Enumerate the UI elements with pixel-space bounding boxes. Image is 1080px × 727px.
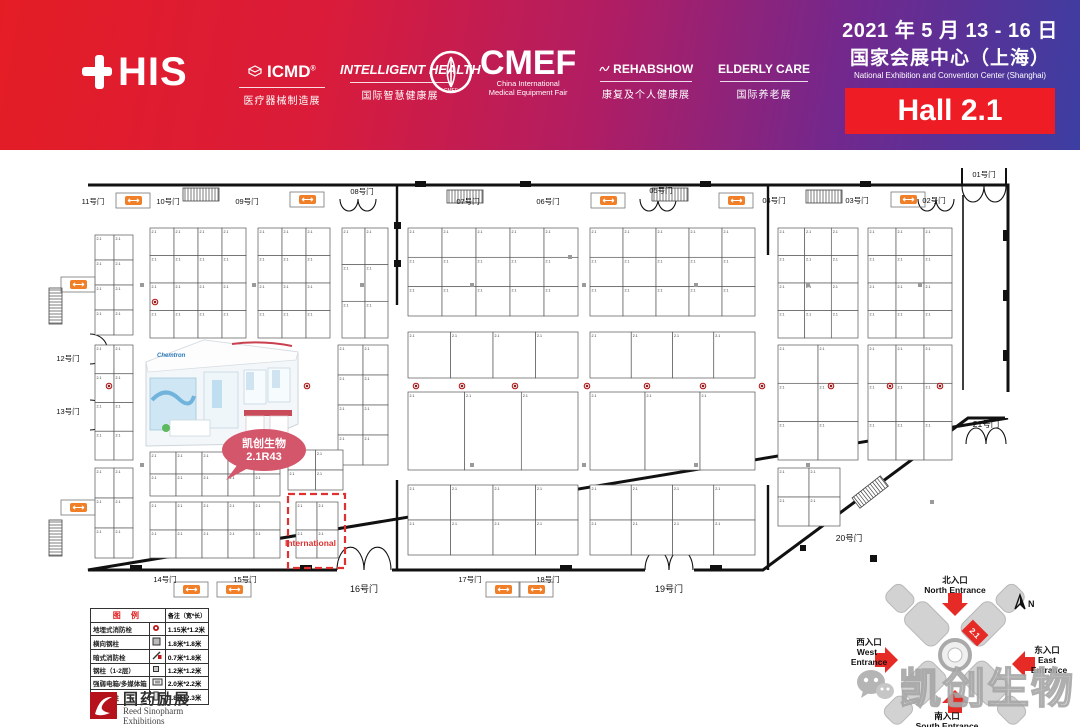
svg-text:2.1: 2.1 [308, 285, 313, 289]
svg-text:2.1: 2.1 [298, 504, 303, 508]
svg-text:2.1: 2.1 [833, 313, 838, 317]
svg-text:2.1: 2.1 [97, 262, 102, 266]
booth-cell: 2.1 [896, 345, 924, 383]
legend-row: 钢柱（1-2层） 1.2米*1.2米 [91, 664, 209, 677]
escalator-icon [486, 582, 520, 597]
booth-cell: 2.1 [631, 520, 672, 555]
booth-cell: 2.1 [818, 345, 858, 383]
booth-cell: 2.1 [408, 485, 451, 520]
booth-cell: 2.1 [590, 332, 631, 378]
svg-text:2.1: 2.1 [444, 289, 449, 293]
booth-cell: 2.1 [95, 260, 114, 285]
booth-cell: 2.1 [778, 468, 809, 497]
escalator-icon [591, 193, 625, 208]
svg-text:2.1: 2.1 [116, 347, 121, 351]
highlight-booth-number: 2.1R43 [246, 451, 281, 463]
booth-cell: 2.1 [198, 256, 222, 284]
elderly-name: ELDERLY CARE [712, 62, 816, 76]
escalator-icon [217, 582, 251, 597]
svg-text:2.1: 2.1 [410, 259, 415, 263]
svg-text:2.1: 2.1 [230, 504, 235, 508]
svg-text:2.1: 2.1 [495, 334, 500, 338]
booth-cell: 2.1 [689, 257, 722, 286]
svg-text:2.1: 2.1 [691, 289, 696, 293]
booth-cell: 2.1 [656, 287, 689, 316]
gate-label: 05号门 [649, 186, 672, 195]
rehab-tagline: 康复及个人健康展 [592, 86, 700, 101]
booth-cell: 2.1 [673, 485, 714, 520]
booth-cell: 2.1 [317, 502, 338, 530]
booth-cell: 2.1 [714, 332, 755, 378]
escalator-icon [116, 193, 150, 208]
svg-text:2.1: 2.1 [260, 313, 265, 317]
column-icon [930, 500, 934, 504]
svg-text:2.1: 2.1 [152, 454, 157, 458]
svg-text:2.1: 2.1 [780, 347, 785, 351]
organizer-name-cn: 国药励展 [123, 692, 191, 707]
svg-text:2.1: 2.1 [898, 258, 903, 262]
booth-cell: 2.1 [831, 283, 858, 311]
gate-label: 20号门 [836, 533, 862, 543]
svg-text:2.1: 2.1 [344, 303, 349, 307]
booth-cell: 2.1 [222, 283, 246, 311]
rehab-name: REHABSHOW [613, 62, 693, 76]
booth-cell: 2.1 [673, 520, 714, 555]
svg-text:2.1: 2.1 [592, 334, 597, 338]
svg-text:2.1: 2.1 [116, 405, 121, 409]
booth-cell: 2.1 [306, 228, 330, 256]
east-entrance-label: 东入口 [1034, 645, 1060, 655]
booth-cell: 2.1 [623, 287, 656, 316]
svg-text:2.1: 2.1 [658, 259, 663, 263]
svg-text:2.1: 2.1 [367, 230, 372, 234]
svg-text:2.1: 2.1 [466, 394, 471, 398]
svg-text:2.1: 2.1 [367, 303, 372, 307]
booth-cell: 2.1 [363, 435, 388, 465]
booth-cell: 2.1 [176, 452, 202, 474]
booth-cell: 2.1 [95, 235, 114, 260]
booth-cell: 2.1 [590, 520, 631, 555]
icmd-logo: ICMD® 医疗器械制造展 [232, 62, 332, 107]
south-entrance-label-en: South Entrance [916, 721, 979, 727]
column-icon [470, 283, 474, 287]
booth-cell: 2.1 [222, 228, 246, 256]
icmd-cube-icon [248, 65, 262, 77]
svg-text:2.1: 2.1 [152, 285, 157, 289]
svg-text:2.1: 2.1 [340, 377, 345, 381]
booth-cell: 2.1 [176, 502, 202, 530]
svg-text:2.1: 2.1 [410, 334, 415, 338]
svg-text:2.1: 2.1 [365, 407, 370, 411]
svg-text:2.1: 2.1 [820, 385, 825, 389]
svg-text:2.1: 2.1 [674, 522, 679, 526]
svg-text:2.1: 2.1 [674, 334, 679, 338]
svg-text:2.1: 2.1 [97, 530, 102, 534]
svg-text:2.1: 2.1 [97, 470, 102, 474]
booth-cell: 2.1 [778, 497, 809, 526]
booth-cell: 2.1 [831, 311, 858, 339]
column-square-icon [149, 636, 165, 650]
booth-cell: 2.1 [536, 485, 579, 520]
svg-text:2.1: 2.1 [633, 522, 638, 526]
booth-cell: 2.1 [222, 311, 246, 339]
booth-cell: 2.1 [114, 431, 133, 460]
svg-text:2.1: 2.1 [658, 230, 663, 234]
booth-cell: 2.1 [896, 311, 924, 339]
stairs-icon [852, 476, 888, 508]
booth-cell: 2.1 [510, 287, 544, 316]
gate-label: 02号门 [922, 196, 945, 205]
column-icon [582, 283, 586, 287]
svg-text:2.1: 2.1 [926, 285, 931, 289]
svg-text:2.1: 2.1 [898, 285, 903, 289]
svg-text:2.1: 2.1 [495, 487, 500, 491]
svg-text:2.1: 2.1 [116, 433, 121, 437]
booth-cell: 2.1 [544, 287, 578, 316]
booth-cell: 2.1 [114, 345, 133, 374]
booth-cell: 2.1 [868, 283, 896, 311]
booth-cell: 2.1 [544, 228, 578, 257]
booth-cell: 2.1 [493, 332, 536, 378]
svg-text:2.1: 2.1 [116, 287, 121, 291]
booth-cell: 2.1 [114, 498, 133, 528]
divider [239, 87, 325, 88]
svg-text:2.1: 2.1 [230, 532, 235, 536]
svg-text:2.1: 2.1 [780, 230, 785, 234]
booth-cell: 2.1 [722, 287, 755, 316]
booth-cell: 2.1 [590, 392, 645, 470]
gate-label: 21号门 [973, 419, 999, 429]
legend-row: 横向钢柱 1.8米*1.8米 [91, 636, 209, 650]
divider [600, 81, 692, 82]
svg-text:2.1: 2.1 [200, 285, 205, 289]
hall-title: Hall 2.1 [845, 88, 1055, 134]
svg-text:2.1: 2.1 [546, 289, 551, 293]
booth-cell: 2.1 [338, 405, 363, 435]
escalator-icon [290, 192, 324, 207]
svg-text:2.1: 2.1 [870, 385, 875, 389]
reed-sinopharm-mark-icon [90, 692, 117, 719]
booth-cell: 2.1 [493, 485, 536, 520]
escalator-icon [519, 582, 553, 597]
svg-text:2.1: 2.1 [367, 267, 372, 271]
svg-text:2.1: 2.1 [116, 237, 121, 241]
svg-text:2.1: 2.1 [898, 385, 903, 389]
booth-cell: 2.1 [288, 470, 316, 490]
booth-cell: 2.1 [282, 311, 306, 339]
booth-cell: 2.1 [868, 422, 896, 460]
booth-cell: 2.1 [778, 256, 805, 284]
booth-cell: 2.1 [254, 530, 280, 558]
svg-text:2.1: 2.1 [308, 230, 313, 234]
booth-cell: 2.1 [174, 228, 198, 256]
svg-text:2.1: 2.1 [176, 258, 181, 262]
booth-cell: 2.1 [778, 311, 805, 339]
booth-cell: 2.1 [510, 257, 544, 286]
cmef-emblem-icon: CMEF [428, 49, 474, 95]
booth-cell: 2.1 [365, 301, 388, 338]
svg-text:2.1: 2.1 [715, 522, 720, 526]
svg-text:2.1: 2.1 [340, 347, 345, 351]
booth-cell: 2.1 [202, 502, 228, 530]
booth-cell: 2.1 [451, 520, 494, 555]
legend-row: 暗式消防栓 0.7米*1.8米 [91, 650, 209, 664]
booth-cell: 2.1 [174, 256, 198, 284]
booth-cell: 2.1 [114, 374, 133, 403]
svg-text:2.1: 2.1 [870, 285, 875, 289]
svg-text:2.1: 2.1 [178, 454, 183, 458]
booth-cell: 2.1 [818, 422, 858, 460]
svg-text:2.1: 2.1 [833, 230, 838, 234]
svg-text:2.1: 2.1 [833, 285, 838, 289]
svg-text:2.1: 2.1 [344, 230, 349, 234]
svg-text:2.1: 2.1 [478, 230, 483, 234]
booth-cell: 2.1 [95, 431, 114, 460]
booth-cell: 2.1 [623, 257, 656, 286]
svg-text:2.1: 2.1 [444, 230, 449, 234]
booth-cell: 2.1 [656, 257, 689, 286]
svg-text:2.1: 2.1 [200, 258, 205, 262]
svg-text:2.1: 2.1 [284, 230, 289, 234]
svg-text:2.1: 2.1 [152, 313, 157, 317]
booth-cell: 2.1 [174, 311, 198, 339]
booth-cell: 2.1 [258, 311, 282, 339]
booth-cell: 2.1 [254, 474, 280, 496]
booth-cell: 2.1 [198, 228, 222, 256]
svg-text:2.1: 2.1 [116, 312, 121, 316]
svg-text:2.1: 2.1 [97, 237, 102, 241]
booth-cell: 2.1 [150, 502, 176, 530]
booth-cell: 2.1 [714, 485, 755, 520]
booth-cell: 2.1 [645, 392, 700, 470]
svg-text:2.1: 2.1 [780, 313, 785, 317]
booth-cell: 2.1 [510, 228, 544, 257]
svg-text:2.1: 2.1 [452, 487, 457, 491]
booth-cell: 2.1 [114, 260, 133, 285]
svg-text:2.1: 2.1 [344, 267, 349, 271]
booth-cell: 2.1 [342, 228, 365, 265]
booth-cell: 2.1 [831, 228, 858, 256]
booth-cell: 2.1 [896, 228, 924, 256]
svg-text:2.1: 2.1 [260, 285, 265, 289]
svg-text:2.1: 2.1 [512, 259, 517, 263]
svg-text:2.1: 2.1 [523, 394, 528, 398]
svg-text:2.1: 2.1 [592, 289, 597, 293]
booth-cell: 2.1 [868, 383, 896, 421]
column-icon [252, 283, 256, 287]
svg-text:2.1: 2.1 [780, 385, 785, 389]
column-icon [140, 283, 144, 287]
booth-cell: 2.1 [476, 257, 510, 286]
svg-text:2.1: 2.1 [178, 504, 183, 508]
svg-text:2.1: 2.1 [284, 313, 289, 317]
booth-cell: 2.1 [150, 228, 174, 256]
svg-text:2.1: 2.1 [224, 230, 229, 234]
gate-label: 08号门 [350, 187, 373, 196]
svg-text:2.1: 2.1 [592, 522, 597, 526]
booth-cell: 2.1 [442, 287, 476, 316]
svg-text:2.1: 2.1 [97, 376, 102, 380]
gate-label: 06号门 [536, 197, 559, 206]
svg-text:2.1: 2.1 [691, 259, 696, 263]
svg-text:2.1: 2.1 [811, 499, 816, 503]
svg-text:2.1: 2.1 [633, 487, 638, 491]
gate-label: 11号门 [82, 197, 105, 206]
svg-text:2.1: 2.1 [898, 313, 903, 317]
svg-text:2.1: 2.1 [674, 487, 679, 491]
booth-cell: 2.1 [465, 392, 522, 470]
this-cross-icon [82, 55, 116, 89]
column-icon [470, 463, 474, 467]
north-entrance-label-en: North Entrance [924, 585, 986, 595]
svg-text:2.1: 2.1 [926, 258, 931, 262]
svg-text:2.1: 2.1 [365, 377, 370, 381]
svg-text:2.1: 2.1 [224, 285, 229, 289]
booth-cell: 2.1 [809, 468, 840, 497]
booth-cell: 2.1 [95, 528, 114, 558]
booth-cell: 2.1 [818, 383, 858, 421]
booth-cell: 2.1 [408, 332, 451, 378]
gate-label: 10号门 [156, 197, 179, 206]
svg-text:2.1: 2.1 [724, 289, 729, 293]
booth-cell: 2.1 [924, 345, 952, 383]
svg-text:2.1: 2.1 [537, 487, 542, 491]
gate-label: 15号门 [233, 575, 256, 584]
svg-text:2.1: 2.1 [512, 289, 517, 293]
booth-cell: 2.1 [365, 265, 388, 302]
booth-cell: 2.1 [778, 345, 818, 383]
svg-text:N: N [1028, 599, 1035, 609]
svg-text:2.1: 2.1 [152, 532, 157, 536]
svg-text:2.1: 2.1 [495, 522, 500, 526]
svg-text:2.1: 2.1 [97, 500, 102, 504]
gate-label: 18号门 [536, 575, 559, 584]
column-icon [694, 283, 698, 287]
svg-text:2.1: 2.1 [625, 289, 630, 293]
svg-text:2.1: 2.1 [452, 334, 457, 338]
booth-cell: 2.1 [778, 422, 818, 460]
booth-cell: 2.1 [451, 485, 494, 520]
svg-text:2.1: 2.1 [478, 289, 483, 293]
booth-cell: 2.1 [673, 332, 714, 378]
svg-text:2.1: 2.1 [152, 476, 157, 480]
booth-cell: 2.1 [408, 228, 442, 257]
booth-cell: 2.1 [228, 502, 254, 530]
svg-text:2.1: 2.1 [806, 313, 811, 317]
booth-cell: 2.1 [536, 520, 579, 555]
svg-text:2.1: 2.1 [116, 376, 121, 380]
svg-text:2.1: 2.1 [870, 313, 875, 317]
necc-minimap: 2.1 北入口 North Entrance 西入口 West Entrance… [851, 575, 1068, 727]
booth-cell: 2.1 [363, 375, 388, 405]
svg-text:2.1: 2.1 [308, 313, 313, 317]
booth-cell: 2.1 [544, 257, 578, 286]
svg-text:2.1: 2.1 [224, 313, 229, 317]
booth-cell: 2.1 [150, 283, 174, 311]
booth-cell: 2.1 [150, 256, 174, 284]
cmef-logo: CMEF CMEF China International Medical Eq… [428, 48, 576, 97]
legend-row: 强弱电箱/多媒体箱 2.0米*2.2米 [91, 677, 209, 690]
booth-cell: 2.1 [493, 520, 536, 555]
booth-cell: 2.1 [176, 474, 202, 496]
booth-cell: 2.1 [114, 310, 133, 335]
cmef-name: CMEF [480, 48, 576, 79]
escalator-icon [174, 582, 208, 597]
gate-label: 12号门 [56, 354, 79, 363]
svg-text:2.1: 2.1 [870, 230, 875, 234]
svg-text:2.1: 2.1 [658, 289, 663, 293]
svg-text:2.1: 2.1 [724, 259, 729, 263]
booth-cell: 2.1 [590, 228, 623, 257]
svg-text:2.1: 2.1 [290, 472, 295, 476]
svg-text:2.1: 2.1 [546, 230, 551, 234]
gate-label: 13号门 [56, 407, 79, 416]
stairs-icon [806, 190, 842, 203]
booth-cell: 2.1 [778, 383, 818, 421]
booth-cell: 2.1 [176, 530, 202, 558]
booth-cell: 2.1 [114, 235, 133, 260]
organizer-logo: 国药励展 Reed Sinopharm Exhibitions [90, 692, 191, 727]
gate-label: 01号门 [972, 170, 995, 179]
south-entrance-label: 南入口 [934, 711, 960, 721]
booth-cell: 2.1 [282, 256, 306, 284]
booth-cell: 2.1 [408, 287, 442, 316]
booth-cell: 2.1 [228, 530, 254, 558]
svg-text:2.1: 2.1 [780, 499, 785, 503]
booth-cell: 2.1 [114, 468, 133, 498]
booth-cell: 2.1 [316, 450, 344, 470]
svg-text:2.1: 2.1 [546, 259, 551, 263]
booth-cell: 2.1 [924, 311, 952, 339]
header-banner: HIS ICMD® 医疗器械制造展 INTELLIGENT HEALTH 国际智… [0, 0, 1080, 150]
booth-cell: 2.1 [95, 498, 114, 528]
legend-note-header: 备注（宽*长） [165, 609, 208, 623]
svg-text:2.1: 2.1 [176, 230, 181, 234]
gate-label: 03号门 [845, 196, 868, 205]
svg-text:2.1: 2.1 [592, 230, 597, 234]
svg-text:CMEF: CMEF [444, 88, 458, 94]
escalator-icon [719, 193, 753, 208]
svg-text:2.1: 2.1 [870, 424, 875, 428]
east-entrance-label-en: East [1038, 655, 1056, 665]
column-icon [918, 283, 922, 287]
svg-text:2.1: 2.1 [152, 504, 157, 508]
booth-cell: 2.1 [896, 383, 924, 421]
venue-en: National Exhibition and Convention Cente… [830, 71, 1070, 80]
column-icon [806, 463, 810, 467]
svg-text:2.1: 2.1 [178, 532, 183, 536]
svg-text:2.1: 2.1 [410, 394, 415, 398]
svg-text:2.1: 2.1 [97, 405, 102, 409]
svg-text:2.1: 2.1 [820, 347, 825, 351]
svg-text:2.1: 2.1 [780, 424, 785, 428]
elderly-care-logo: ELDERLY CARE 国际养老展 [712, 62, 816, 101]
column-icon [694, 463, 698, 467]
svg-text:2.1: 2.1 [898, 347, 903, 351]
svg-text:2.1: 2.1 [116, 262, 121, 266]
booth-cell: 2.1 [222, 256, 246, 284]
booth-cell: 2.1 [198, 311, 222, 339]
svg-text:2.1: 2.1 [410, 487, 415, 491]
booth-cell: 2.1 [150, 452, 176, 474]
booth-cell: 2.1 [296, 502, 317, 530]
gate-label: 14号门 [153, 575, 176, 584]
booth-cell: 2.1 [338, 375, 363, 405]
booth-cell: 2.1 [623, 228, 656, 257]
booth-cell: 2.1 [778, 228, 805, 256]
booth-cell: 2.1 [722, 257, 755, 286]
svg-text:2.1: 2.1 [256, 476, 261, 480]
